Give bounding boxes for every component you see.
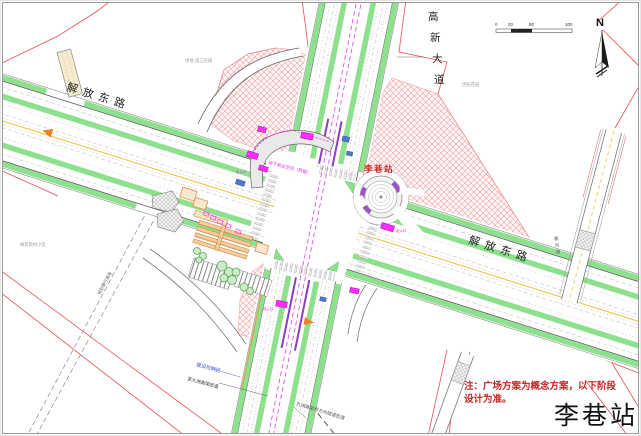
landmark-label-ne: 世纪花园 [462,81,479,88]
svg-text:高: 高 [428,10,439,23]
drawing-canvas: 解放东路 解放东路 高 新 大 道 春 风 路 规划慢行通道 李巷站 地下商业空… [0,0,641,436]
site-plan: 解放东路 解放东路 高 新 大 道 春 风 路 规划慢行通道 李巷站 地下商业空… [0,0,641,436]
construction-zone-label: 建设控制区 [195,361,221,374]
north-arrow-icon: N [595,17,609,77]
ramp-label: 至九洲高架匝道 [186,375,219,390]
svg-text:新: 新 [430,31,441,44]
drawing-title: 李巷站 [554,402,638,430]
road-label-chunfeng: 春 风 路 [554,235,561,255]
svg-text:0: 0 [495,22,498,27]
note-line-1: 注：广场方案为概念方案，以下阶段 [464,380,617,392]
north-label: N [596,17,604,29]
svg-text:50: 50 [529,22,535,27]
note-line-2: 设计为准。 [464,393,512,405]
svg-text:出入口: 出入口 [263,306,273,311]
svg-text:出入口: 出入口 [236,169,246,174]
note-block: 注：广场方案为概念方案，以下阶段 设计为准。 [464,380,617,405]
landmark-label-nw: 绿地·滨江名城 [185,57,213,64]
station-label: 李巷站 [363,164,394,174]
svg-text:春: 春 [554,235,559,242]
svg-text:20: 20 [508,22,514,27]
scale-bar: 0 20 50 100 [495,22,573,33]
svg-text:100: 100 [565,22,573,27]
landmark-label-w: 梅苑新村小区 [20,241,46,248]
road-label-gaoxin: 高 新 大 道 [428,10,445,86]
svg-text:出入口: 出入口 [396,228,406,233]
planned-slow-lane-road [27,202,161,436]
slow-lane-label: 规划慢行通道 [96,270,114,296]
svg-text:道: 道 [434,73,445,86]
svg-text:大: 大 [432,52,443,65]
